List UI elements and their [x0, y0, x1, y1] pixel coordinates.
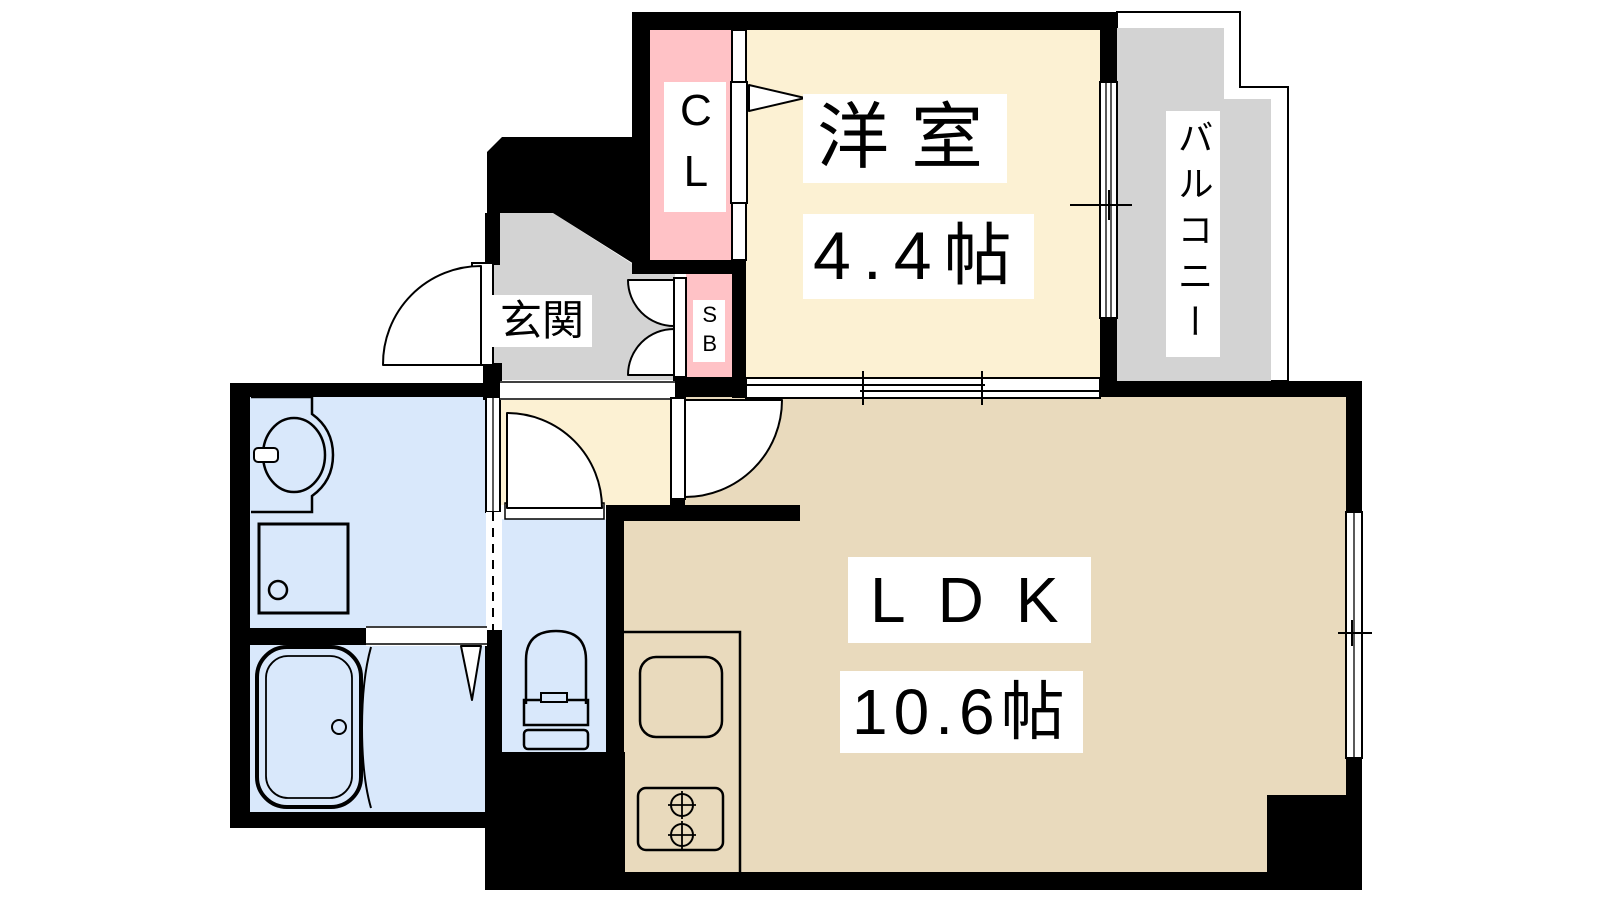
closet-door-frame: [731, 82, 747, 203]
washroom-sliding-door: [486, 397, 500, 512]
western-room-size: 4.4帖: [803, 214, 1034, 299]
shoebox-door-frame: [674, 278, 686, 377]
ldk-door-frame: [671, 398, 685, 499]
toilet-floor: [502, 519, 606, 752]
ldk-size: 10.6帖: [840, 671, 1083, 753]
western-room-label: 洋室: [803, 94, 1007, 183]
shoebox-label: SB: [693, 300, 725, 362]
floor-plan-drawing: [0, 0, 1600, 900]
balcony-label: バルコニー: [1166, 111, 1220, 357]
floor-plan: CL SB 玄関 洋室 4.4帖 バルコニー LDK 10.6帖: [0, 0, 1600, 900]
closet-label: CL: [664, 82, 726, 212]
bathroom-floor: [250, 645, 487, 812]
toilet-tank-button: [541, 693, 567, 702]
western-room-floor: [746, 30, 1100, 381]
dashed-divider: [486, 512, 502, 630]
entrance-label: 玄関: [492, 295, 592, 347]
faucet-icon: [254, 448, 278, 462]
entrance-threshold: [500, 381, 675, 400]
bath-doorway: [366, 626, 487, 646]
entrance-door-swing: [383, 266, 481, 365]
ldk-label: LDK: [848, 557, 1091, 643]
